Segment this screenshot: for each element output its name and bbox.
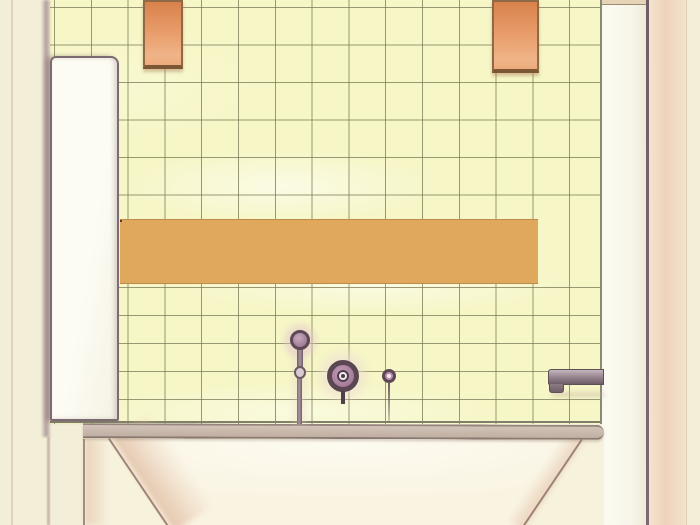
tile-grid-horizontal-lines-lower xyxy=(50,284,602,424)
bathroom-elevation-sketch xyxy=(0,0,700,525)
shower-rod xyxy=(297,378,302,424)
wall-spout-outlet xyxy=(549,384,564,393)
hand-shower-head-icon xyxy=(290,330,310,350)
tub-apron-wash xyxy=(85,439,109,525)
mixer-valve-stem xyxy=(341,391,345,404)
pendant-block-left xyxy=(143,0,183,69)
left-margin-rule xyxy=(11,0,13,525)
wall-spout-icon xyxy=(548,369,604,385)
right-wall-strip xyxy=(602,0,646,525)
tub-rim xyxy=(83,423,604,440)
right-wall-strip-cap xyxy=(602,0,649,5)
diverter-knob-stem xyxy=(388,382,390,422)
white-side-panel xyxy=(50,56,119,421)
mixer-valve-inner-ring xyxy=(337,370,349,382)
mixer-valve-icon xyxy=(327,360,359,392)
pendant-block-right xyxy=(492,0,539,73)
mosaic-accent-band xyxy=(120,219,538,284)
mosaic-tile xyxy=(120,220,122,222)
mixer-valve-center-dot xyxy=(341,374,345,378)
right-margin-rule xyxy=(686,0,687,525)
wall-edge-shadow xyxy=(41,0,50,437)
diverter-knob-icon xyxy=(382,369,396,383)
shower-rod-bracket xyxy=(294,366,306,379)
right-margin-column xyxy=(649,0,686,525)
diverter-knob-center-dot xyxy=(387,374,391,378)
apron-left-line xyxy=(47,437,50,525)
shower-neck xyxy=(297,349,303,367)
